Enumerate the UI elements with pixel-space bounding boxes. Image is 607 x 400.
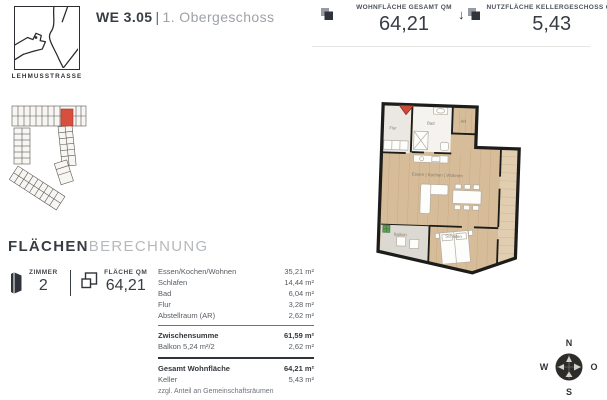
logo-caption: LEHMUSSTRASSE [10, 73, 84, 80]
flaeche-label: FLÄCHE QM [104, 269, 147, 276]
subtotal-label: Zwischensumme [158, 330, 218, 341]
room-label: Flur [158, 299, 171, 310]
expose-page: LEHMUSSTRASSE WE 3.05|1. Obergeschoss WO… [0, 0, 607, 400]
door-icon [10, 271, 23, 295]
plant-icon [383, 225, 390, 232]
room-label-schlafen: Schlafen [445, 233, 462, 239]
overlapping-squares-icon [467, 7, 481, 21]
floor-plan-drawing: Flur Bad AR Essen | Kochen | Wohnen Schl… [371, 97, 527, 280]
stat-nutzflaeche-keller: ↓ NUTZFLÄCHE KELLERGESCHOSS QM 5,43 [458, 4, 606, 36]
compass-rose: N O S W [538, 334, 600, 398]
room-value: 14,44 m² [284, 277, 314, 288]
keller-row: Keller 5,43 m² [158, 374, 314, 385]
table-footnote: zzgl. Anteil an Gemeinschaftsräumen [158, 387, 314, 397]
table-row: Flur 3,28 m² [158, 299, 314, 310]
mini-stats-divider [70, 270, 72, 296]
site-plan-drawing [8, 96, 108, 226]
table-row: Schlafen 14,44 m² [158, 277, 314, 288]
total-row: Gesamt Wohnfläche 64,21 m² [158, 363, 314, 374]
compass-north-label: N [566, 338, 573, 348]
subtotal-row: Zwischensumme 61,59 m² [158, 330, 314, 341]
balkon-label: Balkon 5,24 m²/2 [158, 341, 215, 352]
compass-south-label: S [566, 387, 572, 397]
balkon-value: 2,62 m² [289, 341, 314, 352]
room-value: 35,21 m² [284, 266, 314, 277]
section-title-bold: FLÄCHEN [8, 238, 89, 255]
overlapping-squares-icon [320, 7, 334, 21]
room-label: Bad [158, 288, 171, 299]
page-title: WE 3.05|1. Obergeschoss [96, 9, 274, 25]
highlighted-unit [61, 109, 73, 126]
stat-value: 5,43 [487, 13, 607, 36]
stat-label: WOHNFLÄCHE GESAMT QM [340, 4, 468, 11]
room-value: 3,28 m² [289, 299, 314, 310]
area-table: Essen/Kochen/Wohnen 35,21 m² Schlafen 14… [158, 266, 314, 397]
subtotal-value: 61,59 m² [284, 330, 314, 341]
room-label: Schlafen [158, 277, 187, 288]
table-row: Bad 6,04 m² [158, 288, 314, 299]
compass-west-label: W [540, 362, 549, 372]
zimmer-value: 2 [29, 277, 58, 295]
table-row: Abstellraum (AR) 2,62 m² [158, 310, 314, 321]
logo [14, 6, 80, 70]
room-value: 2,62 m² [289, 310, 314, 321]
room-label-ar: AR [460, 119, 466, 124]
flaeche-stat: FLÄCHE QM 64,21 [81, 269, 147, 295]
room-value: 6,04 m² [289, 288, 314, 299]
section-title: FLÄCHENBERECHNUNG [8, 238, 208, 255]
unit-code: WE 3.05 [96, 9, 153, 25]
floor-plan: Flur Bad AR Essen | Kochen | Wohnen Schl… [371, 97, 527, 280]
room-label: Essen/Kochen/Wohnen [158, 266, 236, 277]
total-value: 64,21 m² [284, 363, 314, 374]
site-key-plan [8, 96, 108, 226]
overlapping-squares-icon [81, 272, 98, 289]
table-row: Essen/Kochen/Wohnen 35,21 m² [158, 266, 314, 277]
compass-east-label: O [590, 362, 597, 372]
compass-icon: N O S W [538, 334, 600, 398]
unit-mini-stats: ZIMMER 2 FLÄCHE QM 64,21 [10, 268, 147, 296]
header-divider-line [312, 46, 590, 47]
street-map-icon [15, 7, 78, 68]
stat-label: NUTZFLÄCHE KELLERGESCHOSS QM [487, 4, 607, 11]
table-rule-thick [158, 357, 314, 359]
total-label: Gesamt Wohnfläche [158, 363, 230, 374]
balkon-row: Balkon 5,24 m²/2 2,62 m² [158, 341, 314, 352]
zimmer-stat: ZIMMER 2 [10, 269, 58, 295]
table-rule-thin [158, 325, 314, 326]
room-label-flur: Flur [389, 125, 397, 130]
stat-value: 64,21 [340, 13, 468, 36]
room-label: Abstellraum (AR) [158, 310, 215, 321]
floor-name: 1. Obergeschoss [163, 9, 275, 25]
keller-label: Keller [158, 374, 177, 385]
title-divider: | [153, 9, 163, 25]
section-title-light: BERECHNUNG [89, 238, 209, 255]
zimmer-label: ZIMMER [29, 269, 58, 276]
stat-wohnflaeche: WOHNFLÄCHE GESAMT QM 64,21 [320, 4, 468, 36]
flaeche-value: 64,21 [104, 277, 147, 295]
keller-value: 5,43 m² [289, 374, 314, 385]
down-arrow-icon: ↓ [458, 8, 465, 21]
room-label-bad: Bad [427, 120, 435, 125]
room-label-balkon: Balkon [394, 232, 408, 237]
